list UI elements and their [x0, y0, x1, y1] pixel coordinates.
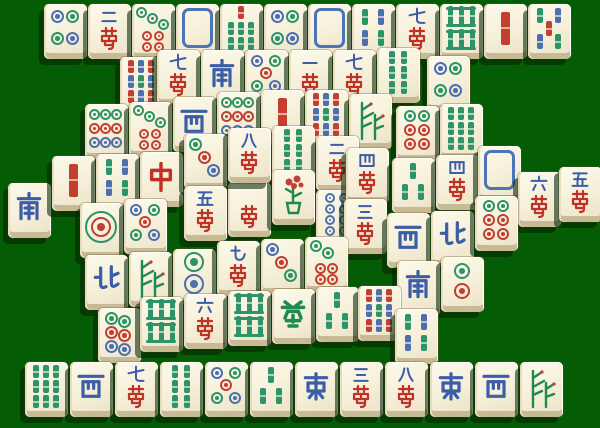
tile-face [205, 362, 248, 417]
bamboo-stick [284, 129, 290, 142]
tile-six-characters[interactable] [518, 172, 561, 227]
bamboo-stick [448, 107, 454, 120]
bamboo-stick [386, 304, 392, 317]
bamboo-stick [236, 316, 241, 337]
character-glyph [397, 5, 437, 52]
tile-one-circle[interactable] [80, 203, 123, 258]
tile-three-bamboo[interactable] [250, 362, 293, 417]
tile-face [305, 237, 348, 292]
bamboo-stick [333, 108, 339, 121]
bamboo-stick [418, 184, 424, 200]
character-glyph [89, 5, 129, 52]
tile-face [217, 241, 260, 296]
circle-pip [111, 109, 122, 120]
circle-pip [51, 32, 64, 45]
bamboo-stick [122, 180, 128, 196]
bamboo-stick [247, 316, 252, 337]
circle-pip [404, 124, 416, 136]
bamboo-stick [362, 9, 368, 25]
bamboo-stick [247, 293, 252, 314]
bamboo-stick [184, 380, 190, 393]
bamboo-stick [405, 314, 411, 330]
tile-face [346, 148, 389, 203]
bamboo-stick [172, 365, 178, 378]
tile-three-characters[interactable] [344, 199, 387, 254]
bamboo-stick [296, 129, 302, 142]
bamboo-stick [362, 30, 368, 46]
tile-west-wind[interactable] [475, 362, 518, 417]
bamboo-stick [138, 75, 144, 88]
tile-face [316, 287, 359, 342]
circle-pip [275, 256, 288, 269]
tile-character-tile-partly-hidden[interactable] [228, 182, 271, 237]
tile-face [518, 172, 561, 227]
tile-face [427, 56, 470, 111]
tile-face [85, 255, 128, 310]
circle-pip [229, 392, 241, 404]
character-glyph [519, 173, 559, 220]
tile-face [140, 297, 183, 352]
tile-face [129, 102, 172, 157]
tile-eight-bamboo[interactable] [440, 4, 483, 59]
character-glyph [185, 295, 225, 342]
circle-pip [139, 140, 149, 150]
wind-glyph [476, 363, 516, 410]
bamboo-stick [172, 380, 178, 393]
character-glyph [229, 183, 269, 230]
circle-pip [325, 215, 335, 225]
tile-west-wind[interactable] [70, 362, 113, 417]
circle-pip [418, 138, 430, 150]
tile-face [184, 134, 227, 189]
bamboo-stick [138, 60, 144, 73]
bamboo-stick [228, 37, 234, 50]
circle-pip [315, 274, 326, 285]
circle-pip [434, 84, 447, 97]
tile-face [261, 239, 304, 294]
bamboo-stick [458, 107, 464, 120]
circle-pip [130, 229, 142, 241]
circle-pip [271, 10, 284, 23]
tile-face [440, 104, 483, 159]
circle-pip [322, 247, 334, 259]
bamboo-stick [342, 313, 348, 329]
tile-face [478, 146, 521, 201]
bamboo-stick [323, 108, 329, 121]
tile-face [70, 362, 113, 417]
bamboo-stick [468, 107, 474, 120]
circle-pip [327, 274, 338, 285]
bamboo-stick [333, 93, 339, 106]
circle-pip [497, 214, 509, 226]
tile-three-bamboo[interactable] [392, 158, 435, 213]
bamboo-stick [410, 163, 416, 179]
circle-pip [207, 164, 220, 177]
bamboo-stick [184, 395, 190, 408]
bamboo-stick [33, 380, 39, 393]
tile-face [475, 196, 518, 251]
tile-two-characters[interactable] [88, 4, 131, 59]
bamboo-stick [53, 395, 59, 408]
tile-five-characters[interactable] [184, 186, 227, 241]
character-glyph [347, 149, 387, 196]
tile-face [8, 183, 51, 238]
tile-nine-bamboo[interactable] [25, 362, 68, 417]
circle-pip [271, 32, 284, 45]
tile-face [559, 167, 600, 222]
circle-pip [66, 32, 79, 45]
bamboo-stick [238, 6, 244, 19]
circle-pip [142, 31, 152, 41]
circle-pip [91, 217, 111, 237]
circle-pip [483, 214, 495, 226]
tile-flower-bamboo[interactable] [520, 362, 563, 417]
wind-glyph [296, 363, 336, 410]
character-glyph [116, 363, 156, 410]
bamboo-stick [248, 22, 254, 35]
bamboo-stick [53, 365, 59, 378]
circle-pip [148, 204, 160, 216]
bamboo-stick [458, 137, 464, 150]
tile-west-wind[interactable] [387, 213, 430, 268]
bamboo-stick [421, 335, 427, 351]
bamboo-stick [122, 159, 128, 175]
tile-five-circles[interactable] [124, 199, 167, 254]
tile-east-wind[interactable] [430, 362, 473, 417]
circle-pip [220, 379, 232, 391]
bamboo-stick [159, 322, 164, 343]
circle-pip [325, 204, 335, 214]
circle-pip [243, 97, 254, 108]
bamboo-stick [546, 21, 552, 36]
circle-pip [105, 340, 118, 353]
circle-pip [158, 19, 169, 30]
tile-face [228, 128, 271, 183]
flower-plum-art [273, 171, 313, 218]
tile-face [395, 309, 438, 364]
circle-pip [483, 200, 495, 212]
tile-face [272, 170, 315, 225]
bamboo-stick [33, 395, 39, 408]
bamboo-stick [401, 66, 407, 79]
bamboo-stick [296, 144, 302, 157]
tile-six-circles[interactable] [396, 106, 439, 161]
bamboo-stick [389, 51, 395, 64]
circle-pip [51, 10, 64, 23]
bamboo-stick [501, 12, 510, 45]
tile-seven-circles[interactable] [129, 102, 172, 157]
circle-pip [497, 228, 509, 240]
circle-pip [310, 240, 322, 252]
bamboo-stick [401, 51, 407, 64]
character-glyph [218, 242, 258, 289]
circle-pip [251, 55, 263, 67]
circle-pip [211, 392, 223, 404]
tile-face [115, 362, 158, 417]
circle-pip [497, 200, 509, 212]
bamboo-stick [43, 395, 49, 408]
circle-pip [100, 137, 111, 148]
circle-pip [66, 10, 79, 23]
tile-face [160, 362, 203, 417]
tile-face [392, 158, 435, 213]
circle-pip [454, 283, 470, 299]
tile-six-bamboo[interactable] [160, 362, 203, 417]
bamboo-stick [260, 388, 266, 404]
tile-south-wind[interactable] [397, 261, 440, 316]
bamboo-stick [366, 304, 372, 317]
tile-five-characters[interactable] [559, 167, 600, 222]
circle-pip [139, 129, 149, 139]
tile-flower-plum[interactable] [272, 170, 315, 225]
tile-six-characters[interactable] [184, 294, 227, 349]
bamboo-stick [248, 37, 254, 50]
tile-four-circles[interactable] [427, 56, 470, 111]
bamboo-stick [326, 313, 332, 329]
circle-pip [284, 269, 297, 282]
tile-five-bamboo[interactable] [528, 4, 571, 59]
circle-pip [133, 105, 144, 116]
bamboo-stick [468, 122, 474, 135]
character-glyph [341, 363, 381, 410]
wind-glyph [202, 51, 242, 98]
tile-four-circles[interactable] [44, 4, 87, 59]
circle-pip [232, 111, 243, 122]
circle-pip [118, 315, 131, 328]
bamboo-stick [334, 292, 340, 308]
circle-pip [243, 111, 254, 122]
tile-face [340, 362, 383, 417]
tile-face [385, 362, 428, 417]
tile-seven-characters[interactable] [115, 362, 158, 417]
circle-pip [105, 326, 118, 339]
bamboo-stick [402, 184, 408, 200]
circle-pip [184, 274, 204, 294]
bamboo-stick [43, 380, 49, 393]
tile-face [441, 257, 484, 312]
bamboo-stick [313, 108, 319, 121]
bamboo-stick [148, 60, 154, 73]
circle-pip [100, 123, 111, 134]
circle-pip [221, 111, 232, 122]
tile-three-bamboo[interactable] [316, 287, 359, 342]
circle-pip [269, 55, 281, 67]
bamboo-stick [148, 299, 153, 320]
tile-face [475, 362, 518, 417]
circle-pip [229, 367, 241, 379]
bamboo-stick [258, 293, 263, 314]
tile-face [88, 4, 131, 59]
bamboo-stick [236, 293, 241, 314]
tile-eight-characters-top-tile[interactable] [228, 128, 271, 183]
bamboo-stick [458, 122, 464, 135]
bamboo-stick [401, 81, 407, 94]
circle-pip [404, 110, 416, 122]
tile-face [44, 4, 87, 59]
flower-bamboo-art [521, 363, 561, 410]
bamboo-stick [258, 316, 263, 337]
tile-face [124, 199, 167, 254]
character-glyph [386, 363, 426, 410]
circle-pip [404, 138, 416, 150]
tile-face [85, 104, 128, 159]
tile-east-wind[interactable] [295, 362, 338, 417]
character-glyph [158, 51, 198, 98]
circle-pip [418, 110, 430, 122]
bamboo-stick [448, 6, 453, 27]
bamboo-stick [184, 365, 190, 378]
tile-face [272, 289, 315, 344]
bamboo-stick [448, 137, 454, 150]
circle-pip [434, 62, 447, 75]
bamboo-stick [128, 60, 134, 73]
tile-face [397, 261, 440, 316]
white-dragon-frame [182, 8, 213, 48]
wind-glyph [398, 262, 438, 309]
tile-four-bamboo[interactable] [395, 309, 438, 364]
character-glyph [345, 200, 385, 247]
wind-glyph [9, 184, 49, 231]
character-glyph [560, 168, 600, 215]
tile-nine-bamboo[interactable] [440, 104, 483, 159]
bamboo-stick [459, 29, 464, 50]
white-dragon-frame [314, 8, 345, 48]
tile-face [98, 308, 141, 363]
circle-pip [211, 367, 223, 379]
bamboo-stick [378, 30, 384, 46]
tile-face [436, 155, 479, 210]
tile-two-circles[interactable] [441, 257, 484, 312]
circle-pip [155, 117, 166, 128]
tile-eight-bamboo[interactable] [228, 291, 271, 346]
bamboo-stick [333, 123, 339, 136]
tile-face [184, 294, 227, 349]
bamboo-stick [470, 29, 475, 50]
circle-pip [232, 97, 243, 108]
bamboo-stick [378, 9, 384, 25]
bamboo-stick [238, 37, 244, 50]
mahjong-board [0, 0, 600, 428]
tile-six-circles[interactable] [475, 196, 518, 251]
tile-six-circles[interactable] [305, 237, 348, 292]
circle-pip [105, 312, 118, 325]
character-glyph [229, 129, 269, 176]
dragon-glyph [273, 290, 313, 337]
circle-pip [483, 228, 495, 240]
bamboo-stick [421, 314, 427, 330]
bamboo-stick [555, 8, 561, 23]
tile-face [430, 362, 473, 417]
tile-four-characters[interactable] [346, 148, 389, 203]
character-glyph [185, 187, 225, 234]
white-dragon-frame [484, 150, 515, 190]
circle-pip [89, 137, 100, 148]
tile-one-bamboo[interactable] [484, 4, 527, 59]
bamboo-stick [33, 365, 39, 378]
tile-face [80, 203, 123, 258]
bamboo-stick [238, 22, 244, 35]
tile-south-wind[interactable] [8, 183, 51, 238]
bamboo-stick [376, 304, 382, 317]
bamboo-stick [170, 322, 175, 343]
bamboo-stick [148, 322, 153, 343]
bamboo-stick [313, 93, 319, 106]
bamboo-stick [470, 6, 475, 27]
tile-face [484, 4, 527, 59]
circle-pip [139, 216, 151, 228]
bamboo-stick [468, 137, 474, 150]
dragon-glyph [141, 153, 181, 200]
circle-pip [266, 243, 279, 256]
wind-glyph [86, 256, 126, 303]
bamboo-stick [537, 34, 543, 49]
tile-nine-characters[interactable] [217, 241, 260, 296]
bamboo-stick [268, 367, 274, 383]
bamboo-stick [366, 289, 372, 302]
circle-pip [327, 263, 338, 274]
circle-pip [151, 140, 161, 150]
tile-face [440, 4, 483, 59]
tile-four-characters[interactable] [436, 155, 479, 210]
circle-pip [111, 123, 122, 134]
bamboo-stick [389, 66, 395, 79]
wind-glyph [431, 363, 471, 410]
tile-white-dragon[interactable] [478, 146, 521, 201]
bamboo-stick [148, 75, 154, 88]
tile-green-dragon[interactable] [272, 289, 315, 344]
character-glyph [437, 156, 477, 203]
flower-bamboo-art [350, 95, 390, 142]
tile-face [520, 362, 563, 417]
bamboo-stick [170, 299, 175, 320]
tile-three-characters[interactable] [340, 362, 383, 417]
circle-pip [154, 31, 164, 41]
tile-six-circles-chain[interactable] [98, 308, 141, 363]
circle-pip [418, 124, 430, 136]
circle-pip [89, 109, 100, 120]
bamboo-stick [376, 289, 382, 302]
tile-three-circles[interactable] [261, 239, 304, 294]
tile-eight-bamboo[interactable] [140, 297, 183, 352]
bamboo-stick [459, 6, 464, 27]
circle-pip [454, 263, 470, 279]
bamboo-stick [555, 34, 561, 49]
circle-pip [144, 111, 155, 122]
tile-three-circles[interactable] [184, 134, 227, 189]
bamboo-stick [366, 319, 372, 332]
bamboo-stick [128, 75, 134, 88]
tile-face [25, 362, 68, 417]
bamboo-stick [537, 8, 543, 23]
bamboo-stick [159, 299, 164, 320]
tile-eight-characters[interactable] [385, 362, 428, 417]
tile-north-wind[interactable] [85, 255, 128, 310]
tile-five-circles[interactable] [205, 362, 248, 417]
circle-pip [111, 137, 122, 148]
circle-pip [221, 97, 232, 108]
bamboo-stick [106, 180, 112, 196]
bamboo-stick [53, 380, 59, 393]
circle-pip [130, 204, 142, 216]
circle-pip [118, 343, 131, 356]
wind-glyph [432, 212, 472, 259]
tile-face [184, 186, 227, 241]
circle-pip [151, 129, 161, 139]
tile-nine-circles[interactable] [85, 104, 128, 159]
bamboo-stick [376, 319, 382, 332]
bamboo-stick [386, 289, 392, 302]
bamboo-stick [448, 122, 454, 135]
